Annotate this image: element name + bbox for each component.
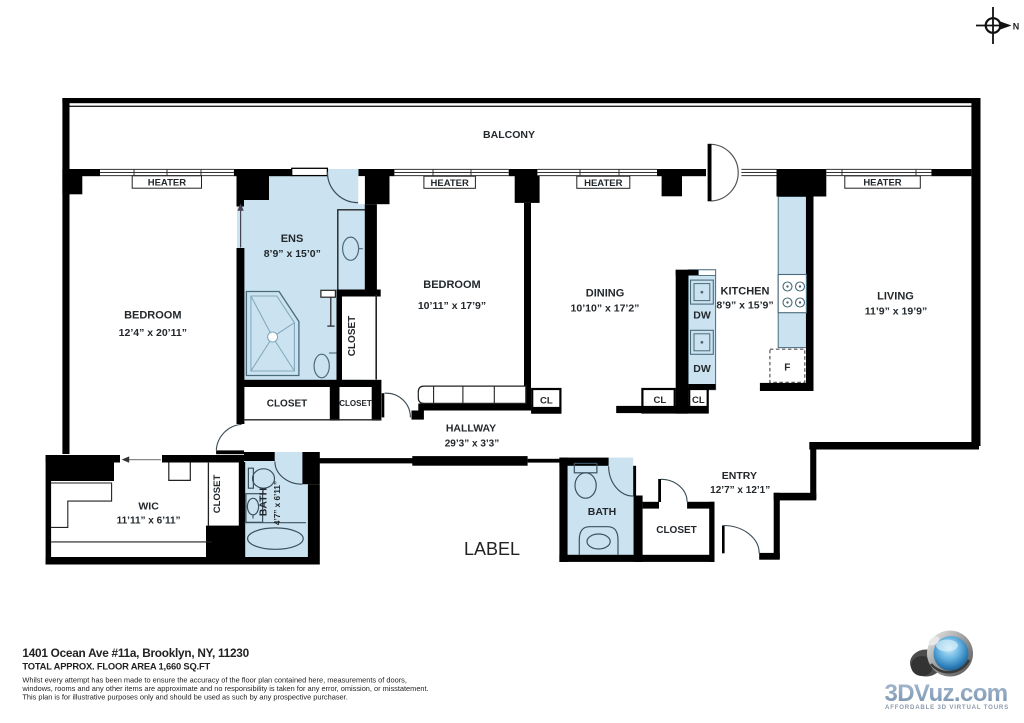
svg-text:CLOSET: CLOSET xyxy=(212,475,223,514)
svg-text:HEATER: HEATER xyxy=(431,178,469,189)
svg-text:CL: CL xyxy=(653,395,666,406)
svg-text:TOTAL APPROX. FLOOR AREA 1,660: TOTAL APPROX. FLOOR AREA 1,660 SQ.FT xyxy=(22,661,210,672)
svg-text:ENTRY: ENTRY xyxy=(722,470,757,482)
svg-text:DW: DW xyxy=(693,310,711,322)
svg-text:HEATER: HEATER xyxy=(584,178,622,189)
svg-text:N: N xyxy=(1013,22,1020,32)
svg-text:29’3” x 3’3”: 29’3” x 3’3” xyxy=(445,439,499,450)
svg-text:1401 Ocean Ave #11a, Brooklyn,: 1401 Ocean Ave #11a, Brooklyn, NY, 11230 xyxy=(22,646,249,660)
svg-text:HEATER: HEATER xyxy=(148,178,186,189)
svg-text:CLOSET: CLOSET xyxy=(656,525,697,536)
svg-text:11’9” x 19’9”: 11’9” x 19’9” xyxy=(865,306,927,318)
svg-text:12’7” x 12’1”: 12’7” x 12’1” xyxy=(710,485,770,496)
svg-text:BALCONY: BALCONY xyxy=(483,129,535,141)
svg-text:HEATER: HEATER xyxy=(863,178,901,189)
svg-text:AFFORDABLE 3D VIRTUAL TOURS: AFFORDABLE 3D VIRTUAL TOURS xyxy=(885,704,1009,711)
svg-text:ENS: ENS xyxy=(281,233,304,245)
svg-text:BATH: BATH xyxy=(588,506,616,518)
svg-text:This plan is for illustrative: This plan is for illustrative purposes o… xyxy=(22,693,347,702)
svg-text:DINING: DINING xyxy=(586,288,625,300)
svg-text:BEDROOM: BEDROOM xyxy=(423,279,480,291)
svg-text:3DVuz.com: 3DVuz.com xyxy=(884,680,1007,707)
svg-text:CL: CL xyxy=(692,395,705,406)
svg-text:BEDROOM: BEDROOM xyxy=(124,310,181,322)
svg-text:10’10” x 17’2”: 10’10” x 17’2” xyxy=(571,303,640,315)
svg-text:HALLWAY: HALLWAY xyxy=(446,423,496,435)
svg-text:F: F xyxy=(784,363,790,374)
svg-text:10’11” x 17’9”: 10’11” x 17’9” xyxy=(418,300,486,312)
svg-text:CLOSET: CLOSET xyxy=(347,316,358,357)
svg-text:8’9” x 15’0”: 8’9” x 15’0” xyxy=(264,248,321,260)
svg-text:8’9” x 15’9”: 8’9” x 15’9” xyxy=(716,300,773,312)
svg-text:LIVING: LIVING xyxy=(877,291,914,303)
svg-text:11’11” x 6’11”: 11’11” x 6’11” xyxy=(117,516,181,527)
svg-text:4’7” x 6’11”: 4’7” x 6’11” xyxy=(273,481,282,525)
svg-text:KITCHEN: KITCHEN xyxy=(721,286,770,298)
svg-text:WIC: WIC xyxy=(138,500,159,512)
svg-text:CLOSET: CLOSET xyxy=(339,399,372,408)
svg-text:DW: DW xyxy=(693,363,711,375)
svg-text:CL: CL xyxy=(540,396,553,407)
svg-text:12’4” x 20’11”: 12’4” x 20’11” xyxy=(119,327,187,339)
svg-text:BATH: BATH xyxy=(257,488,269,516)
svg-text:CLOSET: CLOSET xyxy=(267,399,308,410)
svg-text:LABEL: LABEL xyxy=(464,539,520,559)
